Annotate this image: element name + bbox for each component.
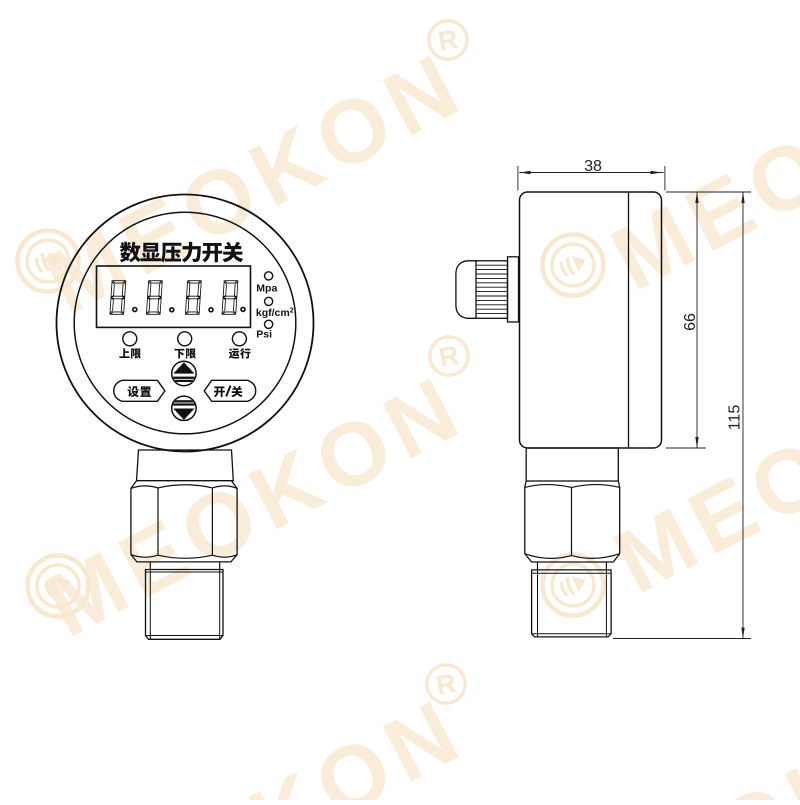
svg-text:38: 38 <box>584 158 602 175</box>
svg-text:Mpa: Mpa <box>256 283 277 295</box>
svg-text:MEOKON: MEOKON <box>600 313 800 614</box>
svg-text:MEOKON: MEOKON <box>30 679 480 800</box>
svg-text:115: 115 <box>727 405 744 431</box>
svg-text:MEOKON: MEOKON <box>30 356 480 657</box>
svg-text:kgf/cm2: kgf/cm2 <box>256 307 294 319</box>
svg-text:66: 66 <box>682 313 699 331</box>
svg-text:MEOKON: MEOKON <box>567 656 800 800</box>
svg-text:Psi: Psi <box>256 328 272 340</box>
svg-text:MEOKON: MEOKON <box>597 10 800 311</box>
